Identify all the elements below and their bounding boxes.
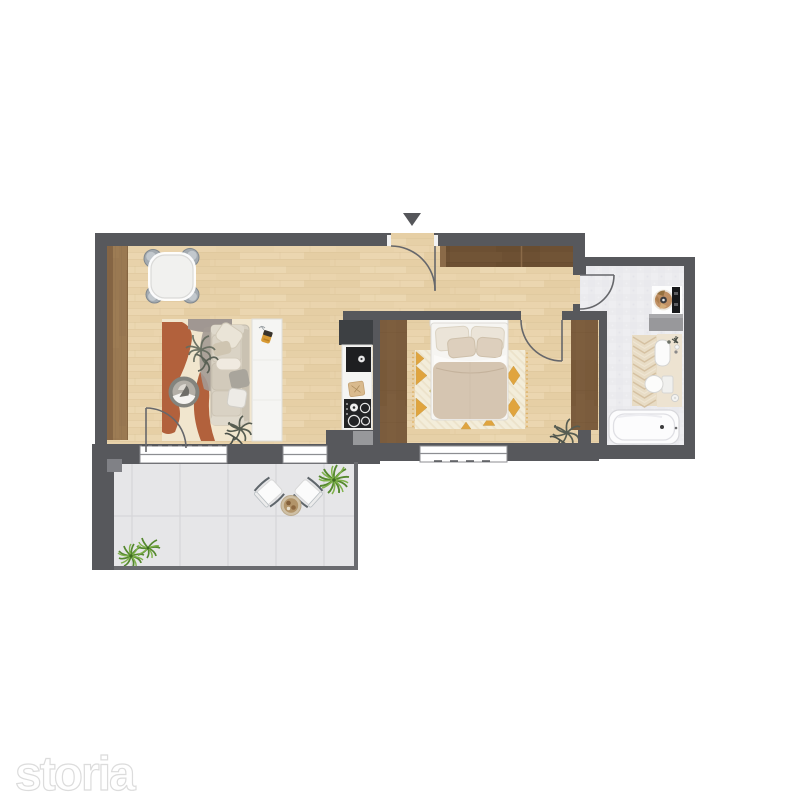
svg-text:storia: storia	[15, 748, 136, 800]
